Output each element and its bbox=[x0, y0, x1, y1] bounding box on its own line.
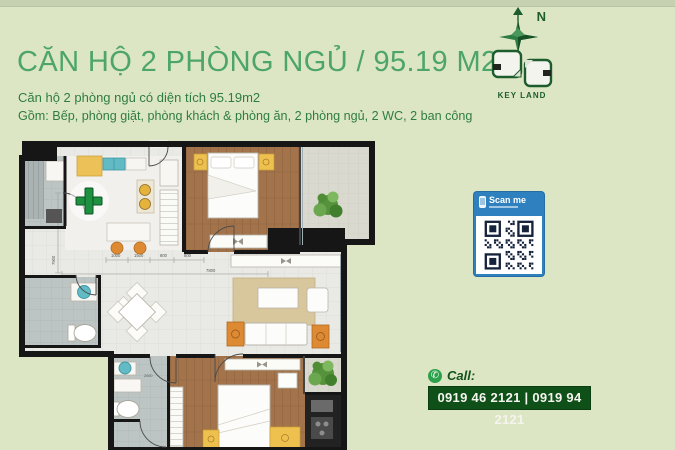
phone-icon: ✆ bbox=[428, 369, 442, 383]
sink bbox=[78, 286, 91, 299]
dimension-label: 800 bbox=[160, 253, 168, 258]
floor-plan: 1000 1500 800 800 7800 7900 4700 4700 20… bbox=[18, 133, 378, 450]
tv-wall bbox=[268, 228, 345, 252]
sofa bbox=[245, 323, 307, 345]
toilet bbox=[74, 325, 96, 342]
phone-numbers: 0919 46 2121 | 0919 94 2121 bbox=[428, 386, 591, 410]
nightstand bbox=[194, 154, 207, 170]
keyland-brand-name: KEY LAND bbox=[485, 91, 559, 100]
compass-north-label: N bbox=[537, 9, 546, 24]
subtitle: Căn hộ 2 phòng ngủ có diện tích 95.19m2 bbox=[18, 90, 260, 105]
page-title: CĂN HỘ 2 PHÒNG NGỦ / 95.19 M2 bbox=[17, 46, 498, 79]
side-table bbox=[227, 322, 244, 346]
call-label: Call: bbox=[447, 368, 475, 383]
qr-header: Scan me bbox=[476, 194, 542, 213]
stool bbox=[111, 242, 123, 254]
dimension-label: 2000 bbox=[144, 374, 152, 378]
qr-body bbox=[476, 216, 542, 274]
side-table bbox=[278, 373, 297, 388]
kitchen-island bbox=[107, 223, 150, 241]
sink bbox=[119, 362, 131, 374]
nightstand bbox=[270, 427, 300, 449]
smartphone-icon bbox=[479, 196, 486, 208]
nightstand bbox=[203, 430, 219, 449]
keyland-logo-icon bbox=[485, 48, 559, 90]
toilet bbox=[117, 401, 139, 418]
qr-title: Scan me bbox=[489, 196, 526, 205]
nightstand bbox=[259, 154, 274, 170]
kitchen-counter bbox=[77, 156, 102, 176]
hall-closet bbox=[160, 190, 178, 245]
qr-badge: Scan me bbox=[474, 192, 544, 276]
stool bbox=[134, 242, 146, 254]
dimension-label: 7900 bbox=[51, 255, 56, 265]
fridge bbox=[160, 160, 178, 186]
description: Gồm: Bếp, phòng giặt, phòng khách & phòn… bbox=[18, 109, 472, 123]
top-strip bbox=[0, 0, 675, 7]
qr-code bbox=[481, 218, 537, 272]
side-table bbox=[312, 325, 329, 348]
utility-fixtures bbox=[311, 400, 333, 439]
flyer-page: CĂN HỘ 2 PHÒNG NGỦ / 95.19 M2 Căn hộ 2 p… bbox=[0, 0, 675, 450]
coffee-table bbox=[258, 288, 298, 308]
keyland-logo: KEY LAND bbox=[485, 48, 559, 104]
closet bbox=[170, 387, 183, 447]
dimension-label: 7800 bbox=[206, 268, 216, 273]
call-row: ✆ Call: bbox=[428, 368, 475, 383]
qr-subtext bbox=[489, 206, 518, 208]
location-cross-icon bbox=[69, 181, 109, 221]
armchair bbox=[307, 288, 328, 312]
